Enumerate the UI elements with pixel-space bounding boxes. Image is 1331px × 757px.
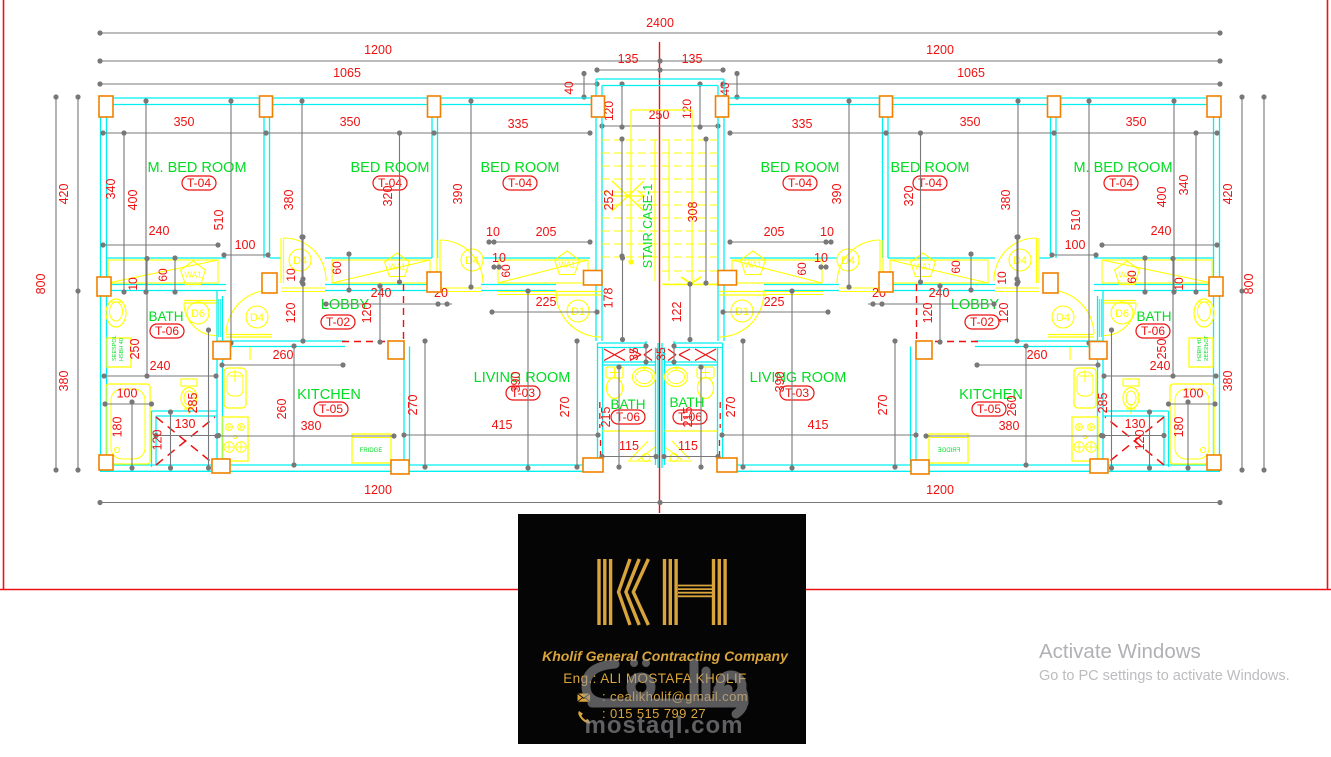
svg-text:205: 205 bbox=[536, 225, 557, 239]
svg-text:320: 320 bbox=[902, 186, 916, 207]
svg-text:D4: D4 bbox=[841, 255, 855, 267]
svg-text:T-06: T-06 bbox=[616, 410, 640, 424]
svg-text:285: 285 bbox=[1096, 393, 1110, 414]
svg-text:380: 380 bbox=[57, 371, 71, 392]
svg-text:420: 420 bbox=[1221, 184, 1235, 205]
svg-text:115: 115 bbox=[678, 439, 698, 453]
svg-text:BED ROOM: BED ROOM bbox=[891, 160, 970, 176]
svg-text:380: 380 bbox=[999, 419, 1020, 433]
svg-text:390: 390 bbox=[830, 184, 844, 205]
svg-text:120: 120 bbox=[921, 303, 935, 324]
svg-text:1200: 1200 bbox=[926, 43, 954, 57]
svg-text:260: 260 bbox=[1027, 348, 1048, 362]
svg-text:260: 260 bbox=[1005, 396, 1019, 417]
svg-text:390: 390 bbox=[773, 372, 787, 393]
svg-text:D6: D6 bbox=[1115, 308, 1129, 320]
svg-text:252: 252 bbox=[602, 190, 616, 211]
svg-text:T-02: T-02 bbox=[326, 315, 350, 329]
svg-text:350: 350 bbox=[960, 115, 981, 129]
svg-text:BED ROOM: BED ROOM bbox=[351, 160, 430, 176]
svg-text:260: 260 bbox=[275, 399, 289, 420]
svg-text:WA1: WA1 bbox=[914, 263, 932, 272]
svg-text:BED ROOM: BED ROOM bbox=[761, 160, 840, 176]
svg-text:270: 270 bbox=[876, 395, 890, 416]
svg-text:130: 130 bbox=[1125, 417, 1146, 431]
svg-text:120: 120 bbox=[151, 430, 165, 451]
svg-text:240: 240 bbox=[1150, 359, 1171, 373]
svg-text:T-04: T-04 bbox=[1109, 176, 1133, 190]
svg-text:270: 270 bbox=[724, 397, 738, 418]
svg-text:135: 135 bbox=[618, 52, 639, 66]
svg-text:335: 335 bbox=[508, 117, 529, 131]
svg-text:420: 420 bbox=[57, 184, 71, 205]
svg-text:120: 120 bbox=[997, 303, 1011, 324]
svg-text:415: 415 bbox=[492, 418, 513, 432]
svg-text:800: 800 bbox=[34, 274, 48, 295]
svg-text:Go to PC settings to activate: Go to PC settings to activate Windows. bbox=[1039, 668, 1290, 684]
svg-text:10: 10 bbox=[284, 268, 298, 282]
svg-text:T-05: T-05 bbox=[977, 402, 1001, 416]
svg-text:510: 510 bbox=[1069, 210, 1083, 231]
svg-text:T-04: T-04 bbox=[187, 176, 211, 190]
svg-text:215: 215 bbox=[599, 407, 613, 428]
svg-text:400: 400 bbox=[126, 190, 140, 211]
svg-text:1200: 1200 bbox=[926, 483, 954, 497]
svg-text:10: 10 bbox=[995, 271, 1009, 285]
svg-text:100: 100 bbox=[1183, 387, 1204, 401]
svg-text:WA1: WA1 bbox=[388, 263, 406, 272]
svg-text:270: 270 bbox=[558, 397, 572, 418]
svg-text:D4: D4 bbox=[293, 255, 307, 267]
svg-text:380: 380 bbox=[1221, 371, 1235, 392]
svg-text:270: 270 bbox=[406, 395, 420, 416]
svg-text:60: 60 bbox=[795, 262, 809, 276]
svg-text:D4: D4 bbox=[465, 255, 479, 267]
svg-text:35: 35 bbox=[627, 347, 641, 361]
svg-text:240: 240 bbox=[1151, 224, 1172, 238]
svg-text:D4: D4 bbox=[1013, 255, 1027, 267]
svg-text:60: 60 bbox=[156, 268, 170, 282]
svg-text:60: 60 bbox=[949, 260, 963, 274]
svg-text:225: 225 bbox=[764, 295, 785, 309]
svg-text:M. BED ROOM: M. BED ROOM bbox=[1073, 160, 1172, 176]
svg-text:SEESPOL: SEESPOL bbox=[112, 335, 118, 361]
svg-text:335: 335 bbox=[792, 117, 813, 131]
svg-text:BATH: BATH bbox=[148, 309, 183, 324]
svg-text:T-04: T-04 bbox=[918, 176, 942, 190]
svg-text:178: 178 bbox=[602, 288, 616, 309]
svg-text:10: 10 bbox=[814, 251, 828, 265]
svg-text:400: 400 bbox=[1155, 187, 1169, 208]
svg-text:215: 215 bbox=[681, 407, 695, 428]
svg-text:260: 260 bbox=[273, 348, 294, 362]
svg-text:115: 115 bbox=[619, 439, 639, 453]
svg-text:122: 122 bbox=[670, 302, 684, 323]
svg-text:M. BED ROOM: M. BED ROOM bbox=[147, 160, 246, 176]
svg-text:205: 205 bbox=[764, 225, 785, 239]
svg-text:HSBH 40: HSBH 40 bbox=[119, 338, 125, 361]
svg-text:240: 240 bbox=[149, 224, 170, 238]
svg-text:350: 350 bbox=[174, 115, 195, 129]
svg-text:mostaql.com: mostaql.com bbox=[584, 712, 743, 739]
svg-text:180: 180 bbox=[1172, 417, 1186, 438]
svg-text:320: 320 bbox=[381, 186, 395, 207]
svg-text:250: 250 bbox=[1155, 339, 1169, 360]
svg-text:T-05: T-05 bbox=[319, 402, 343, 416]
svg-text:WA1: WA1 bbox=[744, 261, 762, 270]
svg-text:T-04: T-04 bbox=[788, 176, 812, 190]
svg-text:60: 60 bbox=[330, 261, 344, 275]
svg-text:250: 250 bbox=[128, 339, 142, 360]
svg-text:2400: 2400 bbox=[646, 16, 674, 30]
svg-text:T-03: T-03 bbox=[785, 386, 809, 400]
svg-text:10: 10 bbox=[1172, 277, 1186, 291]
svg-text:135: 135 bbox=[682, 52, 703, 66]
svg-text:390: 390 bbox=[451, 184, 465, 205]
svg-text:120: 120 bbox=[360, 303, 374, 324]
svg-text:10: 10 bbox=[486, 225, 500, 239]
svg-text:D6: D6 bbox=[191, 308, 205, 320]
svg-text:285: 285 bbox=[186, 393, 200, 414]
svg-text:390: 390 bbox=[509, 372, 523, 393]
svg-text:T-06: T-06 bbox=[155, 324, 179, 338]
svg-text:D4: D4 bbox=[250, 312, 264, 324]
svg-text:1200: 1200 bbox=[364, 483, 392, 497]
svg-text:100: 100 bbox=[117, 387, 138, 401]
svg-text:240: 240 bbox=[150, 359, 171, 373]
svg-text:40: 40 bbox=[718, 82, 732, 96]
svg-text:Activate Windows: Activate Windows bbox=[1039, 640, 1201, 663]
svg-text:LIVING ROOM: LIVING ROOM bbox=[750, 370, 847, 386]
svg-text:HSBH 40: HSBH 40 bbox=[1195, 338, 1201, 361]
svg-text:BED ROOM: BED ROOM bbox=[481, 160, 560, 176]
svg-text:BATH: BATH bbox=[1136, 309, 1171, 324]
svg-text:380: 380 bbox=[999, 190, 1013, 211]
svg-text:415: 415 bbox=[808, 418, 829, 432]
svg-text:SEESPOL: SEESPOL bbox=[1202, 335, 1208, 361]
svg-text:130: 130 bbox=[175, 417, 196, 431]
svg-text:10: 10 bbox=[820, 225, 834, 239]
svg-text:FRIDGE: FRIDGE bbox=[938, 448, 961, 454]
svg-text:FRIDGE: FRIDGE bbox=[360, 448, 383, 454]
svg-text:10: 10 bbox=[126, 277, 140, 291]
svg-text:T-04: T-04 bbox=[508, 176, 532, 190]
svg-text:510: 510 bbox=[212, 210, 226, 231]
svg-text:1200: 1200 bbox=[364, 43, 392, 57]
svg-text:308: 308 bbox=[686, 202, 700, 223]
svg-text:380: 380 bbox=[282, 190, 296, 211]
svg-text:T-02: T-02 bbox=[970, 315, 994, 329]
svg-text:100: 100 bbox=[1065, 238, 1086, 252]
svg-text:1065: 1065 bbox=[957, 66, 985, 80]
svg-text:120: 120 bbox=[284, 303, 298, 324]
svg-text:180: 180 bbox=[111, 417, 125, 438]
svg-text:120: 120 bbox=[1133, 430, 1147, 451]
svg-text:10: 10 bbox=[492, 251, 506, 265]
svg-text:40: 40 bbox=[562, 81, 576, 95]
svg-text:T-06: T-06 bbox=[1141, 324, 1165, 338]
svg-text:WA1: WA1 bbox=[184, 271, 202, 280]
svg-text:380: 380 bbox=[301, 419, 322, 433]
svg-text:WA1: WA1 bbox=[558, 261, 576, 270]
svg-text:340: 340 bbox=[104, 179, 118, 200]
svg-text:350: 350 bbox=[340, 115, 361, 129]
svg-text:340: 340 bbox=[1177, 175, 1191, 196]
svg-text:225: 225 bbox=[536, 295, 557, 309]
svg-text:60: 60 bbox=[1125, 270, 1139, 284]
svg-text:D4: D4 bbox=[1056, 312, 1070, 324]
svg-text:350: 350 bbox=[1126, 115, 1147, 129]
svg-text:35: 35 bbox=[654, 347, 668, 361]
svg-text:60: 60 bbox=[499, 264, 513, 278]
svg-text:STAIR CASE-1: STAIR CASE-1 bbox=[641, 184, 655, 269]
svg-text:1065: 1065 bbox=[333, 66, 361, 80]
svg-text:100: 100 bbox=[235, 238, 256, 252]
svg-text:KITCHEN: KITCHEN bbox=[297, 387, 361, 403]
svg-text:Kholif General Contracting Com: Kholif General Contracting Company bbox=[542, 648, 789, 664]
